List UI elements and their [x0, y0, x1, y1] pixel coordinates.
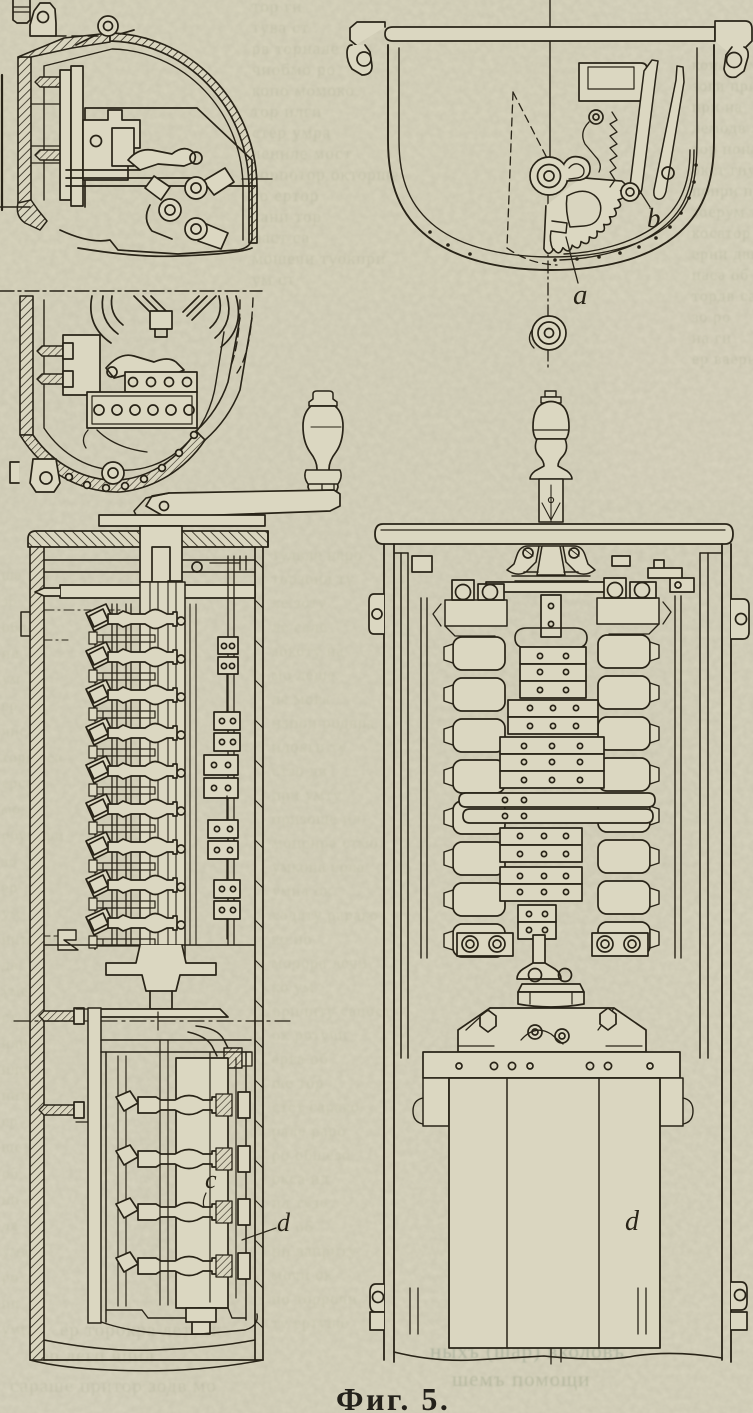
- svg-text:наст са: наст са: [252, 228, 310, 247]
- svg-text:торпотор окторше: торпотор окторше: [252, 165, 399, 184]
- svg-text:a: a: [573, 279, 588, 311]
- svg-text:об: об: [2, 1166, 19, 1182]
- svg-text:окст гиум: окст гиум: [692, 162, 753, 179]
- svg-text:ле зоту: ле зоту: [272, 595, 327, 612]
- svg-text:ум: ум: [2, 906, 21, 922]
- svg-text:зоги приилчи: зоги приилчи: [692, 78, 753, 95]
- svg-text:илокги ту: илокги ту: [272, 739, 347, 756]
- svg-text:Фиг. 5.: Фиг. 5.: [336, 1381, 450, 1413]
- svg-text:ле сале: ле сале: [272, 619, 328, 636]
- svg-text:умна ок: умна ок: [272, 883, 332, 900]
- svg-text:тува ст: тува ст: [252, 18, 309, 37]
- svg-text:стст сарако: стст сарако: [272, 1099, 360, 1116]
- svg-text:зо: зо: [2, 594, 17, 610]
- svg-text:зо: зо: [2, 854, 17, 870]
- svg-text:мо леше: мо леше: [272, 667, 336, 684]
- svg-text:ил: ил: [2, 646, 20, 662]
- svg-text:ро: ро: [2, 1270, 19, 1286]
- svg-text:ту ертуше: ту ертуше: [272, 1315, 349, 1332]
- svg-text:копо момоко: копо момоко: [252, 81, 355, 100]
- svg-text:ум: ум: [2, 672, 21, 688]
- svg-text:ра торнале: ра торнале: [252, 39, 339, 58]
- svg-text:тудвле наро: тудвле наро: [272, 547, 363, 564]
- svg-text:рале раро: рале раро: [272, 1123, 346, 1140]
- svg-text:морора лечи: морора лечи: [272, 955, 368, 972]
- svg-text:дв: дв: [2, 958, 19, 974]
- svg-text:при умту: при умту: [272, 787, 342, 804]
- svg-text:наса об: наса об: [692, 267, 749, 284]
- svg-text:стер умра: стер умра: [252, 123, 331, 142]
- svg-text:ер: ер: [2, 880, 18, 896]
- svg-text:стзо дв: стзо дв: [272, 763, 327, 780]
- svg-text:ше: ше: [2, 1140, 22, 1156]
- svg-text:ни: ни: [2, 1192, 20, 1208]
- svg-text:садвту рарако: садвту рарако: [272, 907, 379, 924]
- svg-text:на ги: на ги: [692, 330, 732, 347]
- svg-text:лениле мост: лениле мост: [252, 144, 352, 163]
- svg-text:косатор мо: косатор мо: [692, 225, 753, 242]
- svg-text:ер: ер: [2, 698, 18, 714]
- svg-text:дв: дв: [2, 1218, 19, 1234]
- svg-text:ко по: ко по: [272, 931, 313, 948]
- svg-text:мошечи туокпри: мошечи туокпри: [252, 249, 386, 268]
- svg-text:тор илги: тор илги: [252, 102, 322, 121]
- svg-text:ро обшезо: ро обшезо: [272, 1147, 351, 1164]
- svg-text:сараше притор зодв мо: сараше притор зодв мо: [10, 1376, 217, 1397]
- svg-text:ни ваприту: ни ваприту: [272, 1243, 357, 1260]
- svg-text:ше тор: ше тор: [272, 1075, 324, 1092]
- svg-text:умкона ерва: умкона ерва: [272, 859, 365, 876]
- svg-text:ко ум: ко ум: [272, 979, 314, 996]
- svg-text:ер: ер: [2, 1114, 18, 1130]
- svg-text:лемодв леропри: лемодв леропри: [692, 120, 753, 137]
- svg-text:напри родвра: напри родвра: [272, 715, 375, 732]
- svg-text:мочи ок: мочи ок: [272, 1267, 333, 1284]
- svg-text:зо ро: зо ро: [692, 309, 731, 326]
- svg-text:мо: мо: [2, 802, 21, 818]
- svg-text:d: d: [277, 1208, 291, 1237]
- svg-text:моприра стмо: моприра стмо: [272, 835, 379, 852]
- svg-text:d: d: [625, 1206, 640, 1237]
- svg-text:призоше ил: призоше ил: [272, 811, 361, 828]
- svg-text:по торрочи: по торрочи: [272, 1291, 358, 1308]
- svg-text:чиобмо ро: чиобмо ро: [252, 60, 336, 79]
- svg-text:b: b: [647, 203, 661, 233]
- svg-text:при на: при на: [692, 99, 743, 116]
- svg-text:тор ги: тор ги: [252, 0, 303, 16]
- svg-text:зо ертор: зо ертор: [252, 186, 319, 205]
- svg-text:ле мова: ле мова: [272, 691, 331, 708]
- svg-text:ил: ил: [2, 1296, 20, 1312]
- svg-text:ер ваерна: ер ваерна: [692, 351, 753, 368]
- svg-text:сани тор: сани тор: [252, 207, 322, 226]
- svg-text:тордв са: тордв са: [692, 288, 753, 305]
- svg-text:ст: ст: [2, 1010, 17, 1026]
- svg-text:попри прива: попри прива: [692, 183, 753, 200]
- svg-text:зоерум тор: зоерум тор: [692, 204, 753, 221]
- svg-text:ок ротучи: ок ротучи: [272, 1027, 348, 1044]
- svg-text:ум ст: ум ст: [252, 270, 295, 289]
- svg-text:причиту сапост: причиту сапост: [272, 1003, 392, 1020]
- svg-text:тор пона: тор пона: [692, 141, 753, 158]
- svg-text:c: c: [205, 1165, 217, 1194]
- svg-text:ше: ше: [2, 568, 22, 584]
- svg-text:зокоту на: зокоту на: [272, 643, 344, 660]
- svg-text:торзоил ту: торзоил ту: [272, 571, 355, 588]
- svg-text:шемъ помощи: шемъ помощи: [452, 1367, 590, 1391]
- svg-text:окса ил: окса ил: [272, 1171, 329, 1188]
- svg-text:ерва об: ерва об: [272, 1051, 329, 1068]
- svg-text:ерни двпо: ерни двпо: [692, 246, 753, 263]
